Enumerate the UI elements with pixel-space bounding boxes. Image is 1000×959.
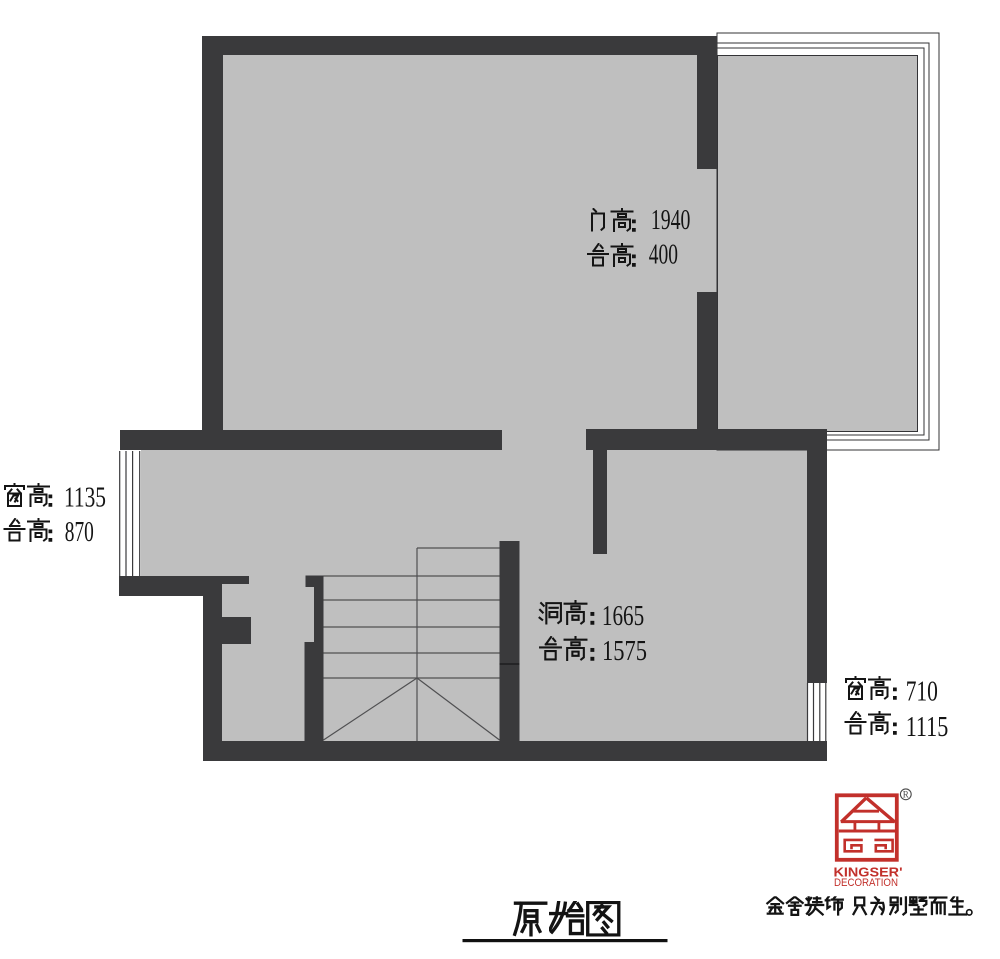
svg-text:400: 400: [649, 240, 678, 271]
svg-text:1135: 1135: [64, 482, 106, 513]
svg-text:DECORATION: DECORATION: [834, 877, 898, 889]
svg-text:870: 870: [65, 517, 94, 548]
svg-text:1665: 1665: [602, 601, 644, 632]
svg-text:710: 710: [906, 676, 938, 707]
svg-text:1115: 1115: [906, 712, 949, 743]
svg-text:R: R: [903, 790, 909, 800]
svg-text:1575: 1575: [602, 636, 647, 667]
svg-text:1940: 1940: [651, 205, 691, 236]
